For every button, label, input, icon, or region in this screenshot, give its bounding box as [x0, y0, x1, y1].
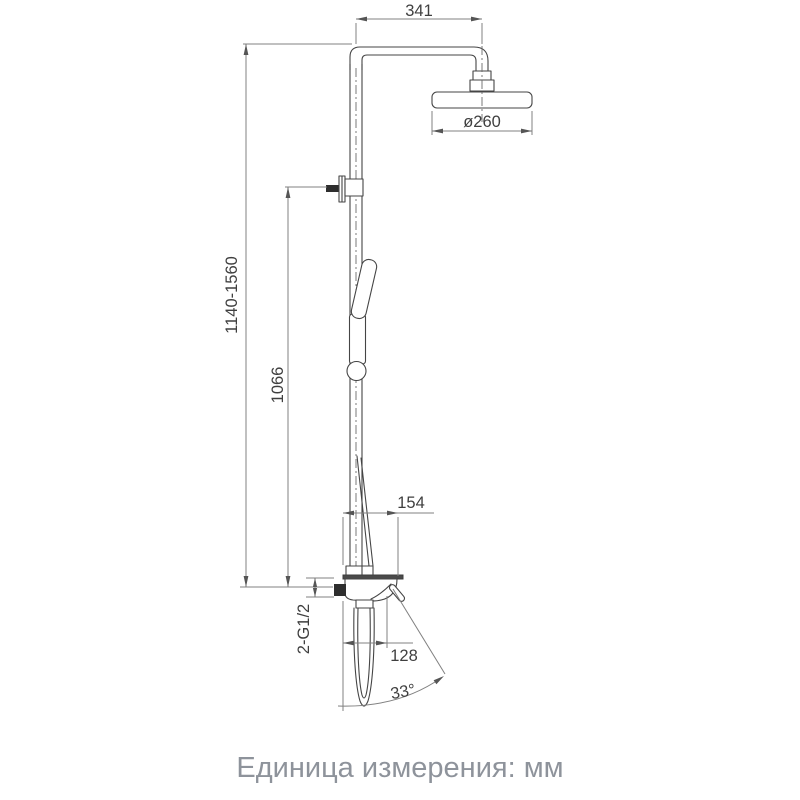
shelf-clamp	[346, 566, 373, 575]
dim-bracket-height: 1066	[269, 187, 327, 587]
dim-head-diameter: ø260	[432, 111, 532, 135]
slider-holder	[347, 362, 366, 381]
dim-top-width-label: 341	[405, 2, 433, 20]
hand-shower-head	[350, 258, 378, 320]
dim-total-height-label: 1140-1560	[223, 256, 241, 334]
dim-inlet-thread-label: 2-G1/2	[295, 604, 313, 654]
dim-top-width: 341	[356, 2, 482, 44]
shower-arm	[350, 47, 488, 71]
hand-shower-hose	[354, 608, 374, 706]
shower-column	[326, 46, 532, 706]
dim-bracket-height-label: 1066	[269, 367, 287, 404]
shower-system-drawing: 341 ø260 1140-1560 1066	[0, 0, 800, 800]
water-inlet	[334, 584, 346, 596]
dim-swivel-angle-label: 33°	[389, 681, 417, 703]
units-caption: Единица измерения: мм	[0, 752, 800, 785]
hose-along-pipe	[357, 456, 373, 566]
dim-body-depth-label: 154	[397, 494, 425, 512]
dim-head-diameter-label: ø260	[463, 113, 501, 131]
bracket-screw	[326, 185, 339, 192]
technical-drawing-page: 341 ø260 1140-1560 1066	[0, 0, 800, 800]
outlet-nut	[356, 600, 373, 608]
hand-shower-grip	[350, 314, 366, 364]
wall-bracket	[326, 176, 363, 202]
mixer-body	[345, 579, 406, 603]
hand-shower	[347, 258, 378, 380]
soap-shelf	[343, 575, 403, 579]
dim-inlet-thread: 2-G1/2	[295, 578, 334, 654]
dim-body-depth: 154	[343, 494, 434, 576]
dim-spout-reach-label: 128	[390, 647, 418, 665]
